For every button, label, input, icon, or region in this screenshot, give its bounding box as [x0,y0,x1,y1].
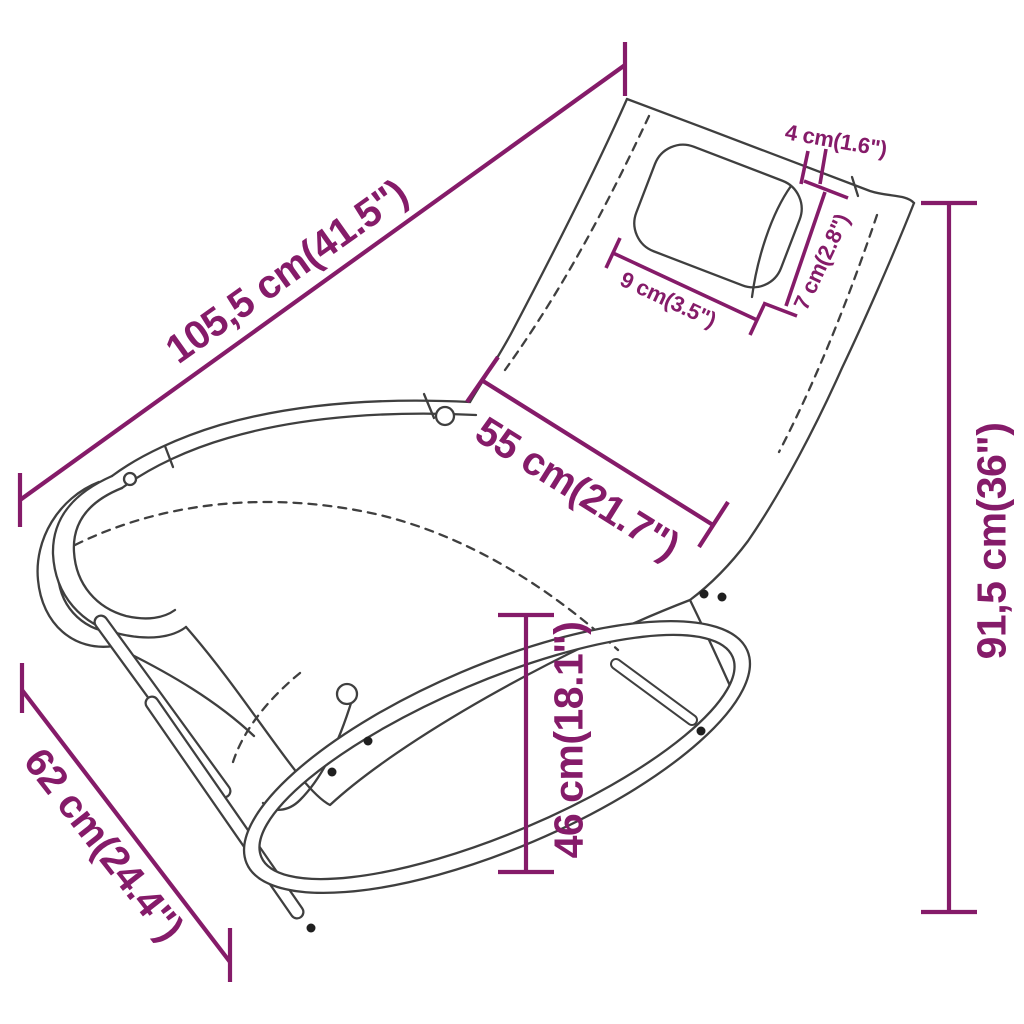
ring-crossbar [616,664,692,720]
dimension-diagram: 105,5 cm(41.5") 55 cm(21.7") 62 cm(24.4"… [0,0,1024,1024]
dim-label-total-height: 91,5 cm(36") [969,423,1016,660]
dim-label-seat-height: 46 cm(18.1") [546,622,593,859]
dimension-line-base-width [22,663,230,982]
frame-hole [436,407,454,425]
tube-cap [124,473,136,485]
pivot-hole [337,684,357,704]
